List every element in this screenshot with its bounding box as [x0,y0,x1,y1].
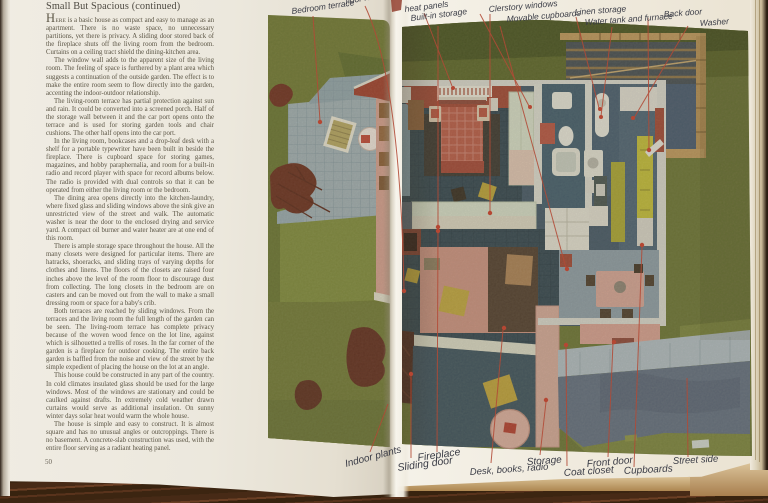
svg-text:Cupboards: Cupboards [624,463,673,477]
svg-text:Storage: Storage [526,455,562,468]
svg-text:Street side: Street side [673,454,719,467]
svg-text:Bedroom terrace: Bedroom terrace [291,0,355,16]
svg-text:Back door: Back door [663,6,703,19]
svg-text:Washer: Washer [699,16,730,28]
